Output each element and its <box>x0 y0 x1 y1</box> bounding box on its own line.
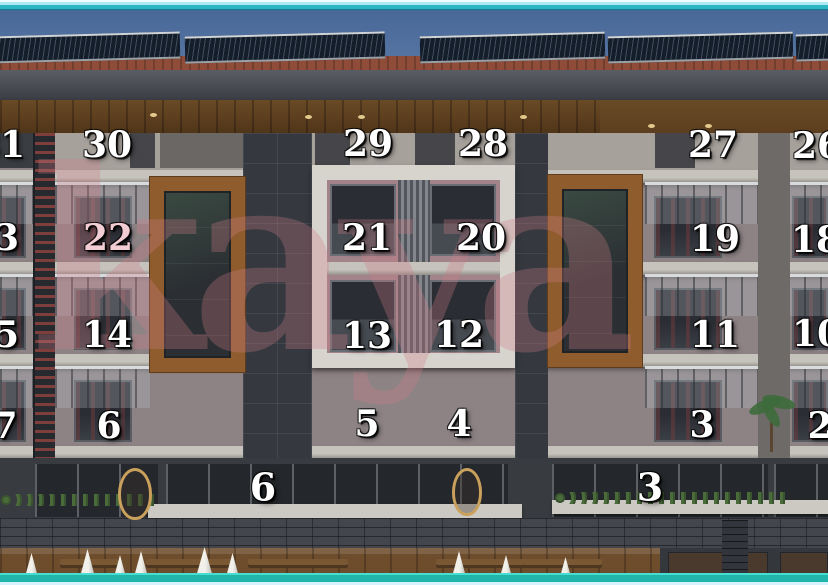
glass-balustrade <box>645 366 775 408</box>
unit-label-f2-12: 12 <box>434 314 484 356</box>
hanging-egg-chair <box>118 468 152 520</box>
unit-label-f1-6: 6 <box>96 405 121 447</box>
solar-panel <box>0 32 180 64</box>
glass-balustrade <box>788 182 828 224</box>
glass-balustrade <box>55 366 150 408</box>
glass-pier-left <box>243 133 312 460</box>
balcony-slab <box>327 262 500 275</box>
roof-fascia <box>0 70 828 102</box>
wood-frame-window-left <box>150 177 245 372</box>
ceiling-spotlight <box>520 115 527 119</box>
solar-panel <box>185 31 386 63</box>
unit-label-f4-26: 26 <box>792 125 828 167</box>
glass-balustrade <box>645 274 775 316</box>
unit-label-f2-10: 10 <box>792 313 828 355</box>
pool-edge-strip <box>0 573 828 582</box>
glass-balustrade <box>0 274 33 316</box>
unit-label-g-6: 6 <box>250 465 276 510</box>
unit-label-f3-22: 22 <box>83 217 133 259</box>
unit-label-f1-4: 4 <box>446 403 471 445</box>
solar-panel <box>608 32 794 64</box>
wooden-bench <box>248 559 348 568</box>
unit-label-f1-7: 7 <box>0 405 18 447</box>
stone-wall <box>0 518 828 548</box>
unit-label-f1-2: 2 <box>807 405 828 447</box>
ceiling-spotlight <box>648 124 655 128</box>
unit-label-f2-13: 13 <box>342 315 392 357</box>
unit-label-f3-23: 23 <box>0 217 19 259</box>
unit-label-f3-18: 18 <box>791 219 828 261</box>
terrace-recess <box>415 133 455 168</box>
unit-label-f4-29: 29 <box>343 123 393 165</box>
unit-label-f2-11: 11 <box>690 314 740 356</box>
ceiling-spotlight <box>358 115 365 119</box>
unit-label-f3-20: 20 <box>456 217 506 259</box>
solar-panel <box>796 34 828 62</box>
ceiling-spotlight <box>150 113 157 117</box>
solar-panel <box>420 32 606 64</box>
unit-label-f4-28: 28 <box>458 123 508 165</box>
ceiling-spotlight <box>305 115 312 119</box>
unit-label-f2-14: 14 <box>82 314 132 356</box>
terrace-recess <box>160 133 243 168</box>
unit-label-f3-19: 19 <box>690 218 740 260</box>
unit-label-f4-31: 31 <box>0 124 25 166</box>
glass-balustrade <box>0 366 33 408</box>
terrace-recess <box>130 133 155 168</box>
glass-balustrade <box>788 274 828 316</box>
hedge <box>554 492 790 504</box>
unit-label-f2-15: 15 <box>0 314 19 356</box>
palm-trunk <box>770 422 773 452</box>
unit-label-f4-30: 30 <box>82 124 132 166</box>
top-border-bar <box>0 0 828 10</box>
building-elevation-render: kaya 31302928272623222120191815141312111… <box>0 0 828 585</box>
glass-balustrade <box>55 274 150 316</box>
hanging-egg-chair <box>452 468 482 516</box>
unit-label-f1-3: 3 <box>689 404 714 446</box>
wood-frame-window-right <box>548 175 642 367</box>
wooden-bench <box>146 559 232 568</box>
unit-label-g-3: 3 <box>637 465 663 510</box>
glass-pier-right <box>515 133 548 460</box>
unit-label-f3-21: 21 <box>342 217 392 259</box>
unit-label-f4-27: 27 <box>688 124 738 166</box>
unit-label-f1-5: 5 <box>354 403 379 445</box>
